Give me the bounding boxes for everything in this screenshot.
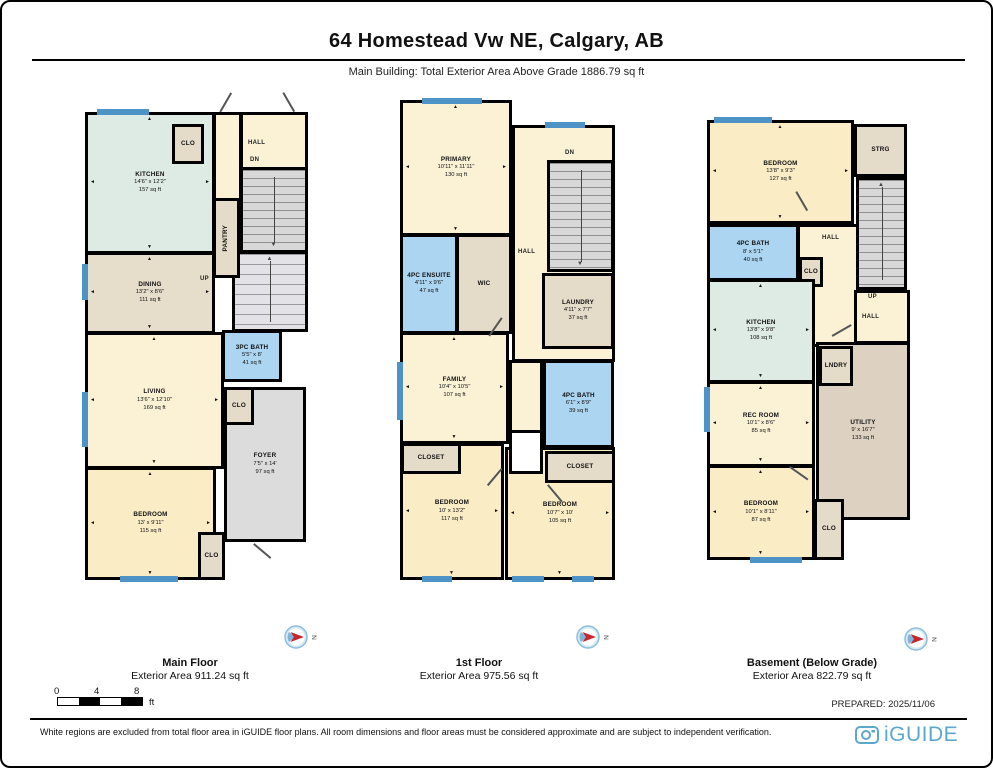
prepared-date: PREPARED: 2025/11/06 [831, 699, 935, 710]
room-area: 37 sq ft [562, 315, 594, 323]
room-name: BEDROOM [744, 500, 778, 509]
room-dims: 13'8" x 9'8" [746, 327, 775, 335]
stair-direction-arrow [274, 177, 275, 243]
corridor-1st [509, 360, 543, 436]
room-area: 105 sq ft [543, 518, 577, 526]
camera-icon [854, 724, 880, 746]
staircase-basement [856, 177, 907, 290]
window-marker [422, 98, 482, 104]
room-dims: 4'11" x 7'7" [562, 307, 594, 315]
room-name: CLO [181, 140, 195, 149]
excluded-white-region [509, 430, 543, 474]
room-name: REC ROOM [743, 412, 779, 421]
room-name: FAMILY [439, 376, 471, 385]
north-label: N [602, 635, 609, 640]
floor-name: Main Floor [60, 657, 320, 669]
room-name: PRIMARY [438, 156, 475, 165]
floor-area: Exterior Area 975.56 sq ft [349, 670, 609, 682]
room-area: 130 sq ft [438, 172, 475, 180]
room-name: WIC [478, 280, 491, 289]
room-bedroom-bottom-basement: BEDROOM10'1" x 8'11"87 sq ft [707, 465, 815, 560]
window-marker [97, 109, 149, 115]
room-dims: 8' x 5'1" [737, 249, 770, 257]
room-closet-bottom-main: CLO [198, 532, 225, 580]
room-name: CLO [232, 402, 246, 411]
room-name: BEDROOM [435, 499, 469, 508]
room-dims: 10'7" x 10' [543, 510, 577, 518]
room-dims: 10'4" x 10'5" [439, 384, 471, 392]
window-marker [572, 576, 594, 582]
window-marker [714, 117, 772, 123]
room-name: DINING [136, 281, 165, 290]
door-swing [282, 92, 294, 112]
north-label: N [310, 635, 317, 640]
room-dims: 9' x 16'7" [850, 427, 875, 435]
room-wic: WIC [456, 234, 512, 334]
room-area: 169 sq ft [137, 405, 172, 413]
room-dims: 5'5" x 8' [236, 352, 269, 360]
room-dims: 7'5" x 14' [253, 461, 276, 469]
room-area: 115 sq ft [133, 528, 167, 536]
title-divider [32, 59, 965, 61]
iguide-logo: iGUIDE [854, 723, 958, 747]
room-area: 133 sq ft [850, 435, 875, 443]
room-pantry: PANTRY [213, 198, 240, 278]
window-marker [704, 387, 710, 432]
room-closet-basement: CLO [814, 499, 844, 560]
compass-rose: N [904, 627, 938, 653]
room-bath-1st: 4PC BATH6'1" x 8'9"39 sq ft [543, 360, 614, 448]
room-name: 4PC BATH [737, 240, 770, 249]
scale-ticks: 0 4 8 [57, 686, 167, 697]
room-name: UTILITY [850, 419, 875, 428]
room-name: BEDROOM [543, 501, 577, 510]
room-area: 41 sq ft [236, 360, 269, 368]
room-ensuite: 4PC ENSUITE4'11" x 9'6"47 sq ft [400, 234, 458, 334]
compass-rose: N [284, 625, 318, 651]
room-dims: 14'6" x 12'2" [134, 179, 166, 187]
floor-caption-1st: 1st Floor Exterior Area 975.56 sq ft [349, 657, 609, 682]
window-marker [422, 576, 452, 582]
room-name: CLOSET [567, 463, 594, 472]
scale-unit: ft [149, 697, 154, 708]
hall-entry-area [213, 112, 242, 202]
compass-icon [904, 627, 928, 651]
room-name: 4PC BATH [562, 392, 595, 401]
stair-direction-arrow [581, 170, 582, 262]
scale-tick-4: 4 [94, 686, 99, 697]
room-closet-top-main: CLO [172, 124, 204, 164]
room-primary: PRIMARY10'11" x 11'11"130 sq ft [400, 100, 512, 236]
hall-label: HALL [518, 249, 535, 255]
floor-area: Exterior Area 822.79 sq ft [682, 670, 942, 682]
room-name: BEDROOM [133, 511, 167, 520]
north-label: N [930, 637, 937, 642]
room-laundry-basement: LNDRY [819, 346, 853, 386]
room-bath-basement: 4PC BATH8' x 5'1"40 sq ft [707, 224, 799, 281]
scale-tick-0: 0 [54, 686, 59, 697]
room-name: LNDRY [825, 362, 847, 371]
scale-tick-8: 8 [134, 686, 139, 697]
room-area: 40 sq ft [737, 257, 770, 265]
room-recroom: REC ROOM10'1" x 8'6"85 sq ft [707, 381, 815, 467]
footer-divider [30, 718, 967, 720]
window-marker [512, 576, 544, 582]
room-dims: 10'11" x 11'11" [438, 164, 475, 172]
room-dims: 10' x 13'2" [435, 508, 469, 516]
window-marker [120, 576, 178, 582]
door-swing [254, 543, 272, 558]
stair-direction-arrow [270, 261, 271, 322]
room-name: BEDROOM [763, 160, 797, 169]
staircase-up-main [232, 251, 308, 332]
room-closet-left-1st: CLOSET [401, 443, 461, 474]
room-kitchen-basement: KITCHEN13'8" x 9'8"108 sq ft [707, 279, 815, 383]
room-area: 127 sq ft [763, 176, 797, 184]
compass-icon [284, 625, 308, 649]
room-area: 157 sq ft [134, 187, 166, 195]
room-name: LAUNDRY [562, 299, 594, 308]
room-dining: DINING13'2" x 8'6"111 sq ft [85, 252, 215, 334]
room-bath-main: 3PC BATH5'5" x 8'41 sq ft [222, 330, 282, 382]
room-area: 87 sq ft [744, 517, 778, 525]
floor-name: Basement (Below Grade) [682, 657, 942, 669]
staircase-down-main [240, 167, 308, 253]
room-area: 39 sq ft [562, 408, 595, 416]
room-storage: STRG [854, 124, 907, 177]
logo-text: iGUIDE [884, 723, 958, 747]
up-label: UP [200, 276, 209, 282]
room-area: 85 sq ft [743, 428, 779, 436]
room-area: 97 sq ft [253, 469, 276, 477]
staircase-1st [547, 160, 614, 272]
room-name: LIVING [137, 388, 172, 397]
down-label: DN [565, 150, 574, 156]
page-title: 64 Homestead Vw NE, Calgary, AB [2, 30, 991, 53]
room-dims: 13'2" x 8'6" [136, 289, 165, 297]
window-marker [750, 557, 802, 563]
room-living: LIVING13'6" x 12'10"169 sq ft [85, 332, 224, 469]
hall-label: HALL [862, 314, 879, 320]
door-swing [219, 92, 231, 112]
room-family: FAMILY10'4" x 10'5"107 sq ft [400, 332, 509, 444]
window-marker [82, 264, 88, 300]
floor-caption-basement: Basement (Below Grade) Exterior Area 822… [682, 657, 942, 682]
room-dims: 10'1" x 8'6" [743, 420, 779, 428]
room-closet-right-1st: CLOSET [545, 451, 615, 483]
room-name: KITCHEN [134, 171, 166, 180]
room-area: 117 sq ft [435, 516, 469, 524]
compass-rose: N [576, 625, 610, 651]
room-name: 3PC BATH [236, 344, 269, 353]
hall-label: HALL [822, 235, 839, 241]
room-dims: 13'8" x 9'3" [763, 168, 797, 176]
room-name: CLO [804, 268, 818, 277]
room-closet-mid-main: CLO [224, 387, 254, 425]
room-name: FOYER [253, 452, 276, 461]
room-name: STRG [871, 146, 889, 155]
floor-area: Exterior Area 911.24 sq ft [60, 670, 320, 682]
room-dims: 4'11" x 9'6" [407, 280, 451, 288]
disclaimer-text: White regions are excluded from total fl… [40, 727, 830, 737]
room-area: 111 sq ft [136, 297, 165, 305]
room-dims: 13' x 9'11" [133, 520, 167, 528]
room-bedroom-main: BEDROOM13' x 9'11"115 sq ft [85, 467, 216, 580]
room-name: 4PC ENSUITE [407, 272, 451, 281]
down-label: DN [250, 157, 259, 163]
room-name: CLO [205, 552, 219, 561]
room-area: 108 sq ft [746, 335, 775, 343]
stair-direction-arrow [882, 187, 883, 280]
room-name: PANTRY [222, 225, 231, 251]
room-name: CLO [822, 525, 836, 534]
hall-label: HALL [248, 140, 265, 146]
room-area: 107 sq ft [439, 392, 471, 400]
scale-bar-segments [57, 697, 143, 706]
window-marker [545, 122, 585, 128]
room-laundry: LAUNDRY4'11" x 7'7"37 sq ft [542, 273, 614, 349]
window-marker [397, 362, 403, 420]
room-name: KITCHEN [746, 319, 775, 328]
room-bedroom-top-basement: BEDROOM13'8" x 9'3"127 sq ft [707, 120, 854, 224]
up-label: UP [868, 294, 877, 300]
compass-icon [576, 625, 600, 649]
floorplan-page: 64 Homestead Vw NE, Calgary, AB Main Bui… [0, 0, 993, 768]
window-marker [82, 392, 88, 447]
floor-name: 1st Floor [349, 657, 609, 669]
room-dims: 6'1" x 8'9" [562, 400, 595, 408]
page-subtitle: Main Building: Total Exterior Area Above… [2, 66, 991, 78]
room-dims: 13'6" x 12'10" [137, 397, 172, 405]
room-area: 47 sq ft [407, 288, 451, 296]
floor-caption-main: Main Floor Exterior Area 911.24 sq ft [60, 657, 320, 682]
room-name: CLOSET [418, 454, 445, 463]
room-dims: 10'1" x 8'11" [744, 509, 778, 517]
scale-bar: 0 4 8 ft [57, 686, 167, 706]
